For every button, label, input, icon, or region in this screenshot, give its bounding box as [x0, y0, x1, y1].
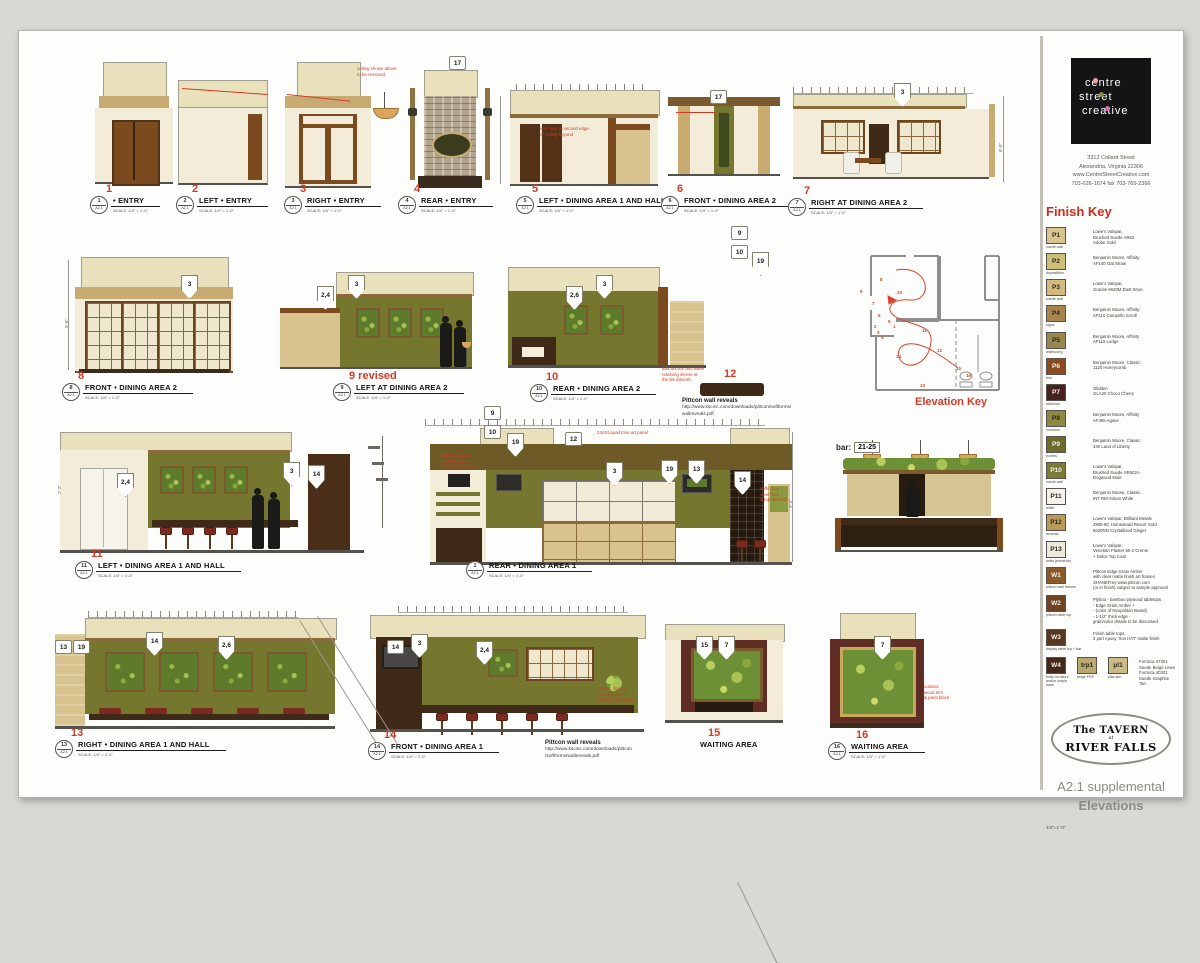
finish-description: Benjamin Moore, AffinityAF465 Agave — [1093, 410, 1139, 423]
elevation-symbol: 9A2.1 — [333, 383, 351, 401]
firm-name-line: centre — [1071, 76, 1151, 90]
elevation-2-drawing — [178, 80, 266, 182]
finish-swatch: P7 — [1046, 384, 1066, 401]
finish-key-item: trp1beige FRP — [1077, 657, 1103, 679]
finish-key-item: P13walls (entrance)Lowe's Valspar,Veneti… — [1046, 541, 1176, 563]
finish-swatch-sublabel: suede wall — [1046, 245, 1086, 249]
elevation-tag-10: 10 — [731, 245, 748, 259]
elevation-label-15: 15 WAITING AREA — [698, 728, 774, 750]
finish-description: Formica 47301 Suede Beige LinenFormica 4… — [1139, 657, 1176, 687]
finish-description: Lowe's Valspar, Brilliant Metals2905-8C … — [1093, 514, 1157, 533]
finish-key-bottom-row: W4finish furniture and/or maple basetrp1… — [1046, 657, 1176, 687]
elevation-label-11: 11 11A2.1 LEFT • DINING AREA 1 AND HALLS… — [75, 549, 241, 579]
elevation-symbol: 4A2.1 — [398, 196, 416, 214]
finish-swatch: P4 — [1046, 305, 1066, 322]
tv-screen-icon — [448, 474, 470, 487]
sheet-name: Elevations — [1046, 798, 1176, 813]
finish-swatch-sublabel: walls (entrance) — [1046, 559, 1086, 563]
elevation-label-2: 2 2A2.1 LEFT • ENTRYSCALE: 1/4" = 1'-0" — [176, 184, 268, 214]
finish-description: Lowe's Valspar,Brushed Suede AR62Adobe G… — [1093, 227, 1134, 246]
finish-swatch-sublabel: display table top + bar — [1046, 647, 1086, 651]
stair-section-icon — [368, 436, 398, 532]
finish-key-item: P10suede wallLowe's Valspar,Brushed Sued… — [1046, 462, 1176, 484]
finish-description: Lowe's Valspar,Granite 6620M Dust Shoe — [1093, 279, 1143, 292]
elevation-symbol: 13A2.1 — [55, 740, 73, 758]
elevation-symbol: 1A2.1 — [90, 196, 108, 214]
finish-key-item: P11whiteBenjamin Moore, ClassicINT RM At… — [1046, 488, 1176, 510]
elevation-label-10: 10 10A2.1 REAR • DINING AREA 2SCALE: 1/4… — [530, 372, 656, 402]
key-plan-number: 2 — [874, 324, 877, 329]
elevation-tag-9: 9 — [484, 406, 501, 420]
sheet-number: A2.1 supplemental — [1046, 779, 1176, 794]
elevation-label-16: 16 16A2.1 WAITING AREASCALE: 1/4" = 1'-0… — [828, 730, 925, 760]
elevation-tag-12: 12 — [565, 432, 582, 446]
finish-description: Benjamin Moore, AffinityAF140 Oat Straw — [1093, 253, 1139, 266]
finish-description: Pittcon Edge Grain Amberwith clear matte… — [1093, 567, 1168, 591]
finish-swatch: W3 — [1046, 629, 1066, 646]
elevation-tag-10: 10 — [484, 425, 501, 439]
key-plan-number: 9 — [860, 289, 863, 294]
elevation-symbol: 10A2.1 — [530, 384, 548, 402]
elevation-7-drawing — [793, 94, 1001, 182]
finish-description: Lowe's Valspar,Brushed Suede SR502ADogwo… — [1093, 462, 1140, 481]
finish-swatch-sublabel: pittcon wall frames — [1046, 585, 1086, 589]
elevation-6-drawing — [668, 97, 780, 181]
red-annotation: ceiling shown aboveto be removed — [357, 66, 429, 77]
finish-key-item: W3display table top + barFinish table to… — [1046, 629, 1176, 651]
key-plan-number: 8 — [880, 277, 883, 282]
finish-swatch: W1 — [1046, 567, 1066, 584]
finish-swatch: P13 — [1046, 541, 1066, 558]
elevation-title: • ENTRY — [111, 196, 160, 207]
bench — [695, 702, 753, 712]
elevation-tag-19: 19 — [73, 640, 90, 654]
finish-swatch: W2 — [1046, 595, 1066, 612]
finish-description: Plyboo - bamboo plywood tabletops- Edge … — [1093, 595, 1161, 625]
elevation-1-drawing — [95, 62, 173, 184]
sconce-icon — [483, 108, 492, 116]
elevation-symbol: 6A2.1 — [661, 196, 679, 214]
finish-key-item: W4finish furniture and/or maple base — [1046, 657, 1072, 687]
tv-screen-icon — [496, 474, 522, 491]
red-annotation: arch way to second edgeof ceiling beyond — [540, 126, 612, 137]
elevation-tag-13: 13 — [55, 640, 72, 654]
finish-swatch: P10 — [1046, 462, 1066, 479]
finish-key-title: Finish Key — [1046, 204, 1176, 219]
finish-swatch: P2 — [1046, 253, 1066, 270]
elevation-tag-9: 9 — [731, 226, 748, 240]
framed-artwork — [840, 647, 916, 717]
elevation-symbol: 5A2.1 — [516, 196, 534, 214]
dimension-label: 9'-6" — [64, 319, 69, 328]
firm-address: 3312 Collard Street Alexandria, Virginia… — [1046, 154, 1176, 188]
elevation-symbol: 1A2.1 — [466, 561, 484, 579]
finish-swatch-sublabel: booths — [1046, 454, 1086, 458]
finish-swatch-sublabel: drywall/trim — [1046, 271, 1086, 275]
finish-swatch-sublabel: white — [1046, 506, 1086, 510]
key-plan-number: 5 — [888, 319, 891, 324]
elevation-label-12: 12 — [724, 369, 736, 380]
elevation-4-drawing — [408, 70, 492, 188]
finish-swatch-sublabel: accents — [1046, 532, 1086, 536]
finish-description: Finish table tops:2 part epoxy 'Iron HAT… — [1093, 629, 1160, 642]
elevation-16-drawing — [830, 613, 924, 733]
elevation-11-drawing — [60, 432, 364, 558]
elevation-13-drawing — [55, 618, 335, 730]
red-annotation: Pittcon drywallreveal/bead todrywall pai… — [441, 453, 513, 470]
logo-dot-icon — [1105, 106, 1110, 111]
key-plan-number: 11 — [922, 328, 927, 333]
elevation-label-1: 1 1A2.1 • ENTRYSCALE: 1/4" = 1'-0" — [90, 184, 160, 214]
bartender-figure — [906, 487, 919, 517]
elevation-symbol: 3A2.1 — [284, 196, 302, 214]
drawing-sheet-page: 12345678910111213141516 Elevation Key — [0, 0, 1200, 828]
dimension-label: 8'-0" — [998, 143, 1003, 152]
elevation-8-drawing — [75, 257, 233, 375]
elevation-9-drawing — [280, 272, 472, 376]
elevation-symbol: 11A2.1 — [75, 561, 93, 579]
finish-description: Benjamin Moore, AffinityAF115 Lodge — [1093, 332, 1139, 345]
red-annotation: outdoorwood trim& paint black — [924, 684, 996, 701]
elevation-symbol: 8A2.1 — [62, 383, 80, 401]
key-plan-number: 16 — [966, 373, 971, 378]
key-plan-number: 14 — [896, 354, 901, 359]
finish-swatch-sublabel: wainscot'g — [1046, 350, 1086, 354]
pendant-light-icon — [372, 92, 398, 122]
bar-elevation-note: bar: 21-25 — [836, 442, 880, 453]
entry-door — [112, 120, 160, 186]
elevation-tag-17: 17 — [449, 56, 466, 70]
finish-description: Benjamin Moore, Classic1120 Honeycomb — [1093, 358, 1141, 371]
elevation-tag-17: 17 — [710, 90, 727, 104]
elevation-label-9: 9 revised 9A2.1 LEFT AT DINING AREA 2SCA… — [333, 371, 464, 401]
key-plan-number: 12 — [937, 348, 942, 353]
finish-swatch-sublabel: suede wall — [1046, 480, 1086, 484]
finish-key-item: P9boothsBenjamin Moore, Classic440 Land … — [1046, 436, 1176, 458]
elevation-label-13: 13 13A2.1 RIGHT • DINING AREA 1 AND HALL… — [55, 728, 226, 758]
entry-double-door — [299, 114, 357, 184]
bar-tag: 21-25 — [854, 442, 880, 453]
elevation-5-drawing — [510, 90, 658, 188]
finish-swatch-sublabel: signs — [1046, 323, 1086, 327]
dimension-label: 7'-2" — [57, 485, 62, 494]
elevation-number: 1 — [106, 184, 160, 195]
key-plan-number: 15 — [956, 366, 961, 371]
finish-swatch: P11 — [1046, 488, 1066, 505]
key-plan-number: 13 — [920, 383, 925, 388]
finish-swatch: P1 — [1046, 227, 1066, 244]
logo-dot-icon — [1099, 92, 1104, 97]
elevation-12-reveal-sample — [700, 383, 764, 396]
rear-dining-area-1-drawing — [430, 428, 792, 568]
finish-swatch-sublabel: trim — [1046, 376, 1086, 380]
elevation-3-drawing — [285, 62, 371, 186]
key-plan-number: 3 — [877, 330, 880, 335]
finish-key-item: pl1plas lam — [1108, 657, 1134, 679]
elevation-label-7: 7 7A2.1 RIGHT AT DINING AREA 2SCALE: 1/4… — [788, 186, 923, 216]
bar-top-plants — [843, 458, 995, 470]
finish-swatch: P6 — [1046, 358, 1066, 375]
elevation-label-rear-dining-1: 1A2.1 REAR • DINING AREA 1SCALE: 1/4" = … — [466, 560, 592, 579]
finish-key-item: W1pittcon wall framesPittcon Edge Grain … — [1046, 567, 1176, 591]
project-logo: The TAVERN at RIVER FALLS — [1051, 713, 1171, 765]
finish-key-item: P7windowsGliddenGLA20 Choco Cherry — [1046, 384, 1176, 406]
finish-description: Benjamin Moore, AffinityAF110 Campello S… — [1093, 305, 1139, 318]
title-block-column: centre street creative 3312 Collard Stre… — [1046, 58, 1176, 830]
finish-description: Benjamin Moore, ClassicINT RM Atrium Whi… — [1093, 488, 1141, 501]
red-annotation: 24x34 quad tone art panel — [597, 430, 669, 436]
pittcon-note: Pittcon wall revealshttp://www.kscinc.co… — [682, 397, 812, 418]
key-plan-number: 10 — [897, 290, 902, 295]
finish-key-item: P3suede wallLowe's Valspar,Granite 6620M… — [1046, 279, 1176, 301]
elevation-symbol: 16A2.1 — [828, 742, 846, 760]
elevation-tag-14: 14 — [387, 640, 404, 654]
finish-swatch: P8 — [1046, 410, 1066, 427]
key-plan-number: 1 — [893, 324, 896, 329]
elevation-symbol: 2A2.1 — [176, 196, 194, 214]
elevation-label-3: 3 3A2.1 RIGHT • ENTRYSCALE: 1/4" = 1'-0" — [284, 184, 381, 214]
finish-description: Benjamin Moore, Classic440 Land of Liber… — [1093, 436, 1141, 449]
tavern-sign-icon — [432, 132, 472, 158]
finish-key-item: P1suede wallLowe's Valspar,Brushed Suede… — [1046, 227, 1176, 249]
finish-key-item: P12accentsLowe's Valspar, Brilliant Meta… — [1046, 514, 1176, 536]
finish-description: Lowe's Valspar,Venetian Plaster 50-2 Cre… — [1093, 541, 1148, 560]
sconce-icon — [408, 108, 417, 116]
bar-elevation-drawing — [835, 440, 1003, 554]
elevation-label-4: 4 4A2.1 REAR • ENTRYSCALE: 1/4" = 1'-0" — [398, 184, 493, 214]
elevation-symbol: 7A2.1 — [788, 198, 806, 216]
pittcon-note: Pittcon wall revealshttp://www.kscinc.co… — [545, 739, 675, 760]
finish-description: GliddenGLA20 Choco Cherry — [1093, 384, 1134, 397]
finish-swatch: P3 — [1046, 279, 1066, 296]
finish-key-item: P8corridorsBenjamin Moore, AffinityAF465… — [1046, 410, 1176, 432]
key-plan-number: 7 — [872, 301, 875, 306]
finish-swatch-sublabel: pittcon table top — [1046, 613, 1086, 617]
elevation-14-drawing — [370, 615, 644, 733]
finish-key-item: P2drywall/trimBenjamin Moore, AffinityAF… — [1046, 253, 1176, 275]
red-annotation: Pittcon drywallreveal/bead atdrywall pai… — [598, 686, 670, 703]
finish-swatch-sublabel: corridors — [1046, 428, 1086, 432]
elevation-key-plan: 12345678910111213141516 — [838, 240, 1008, 405]
logo-dot-icon — [1093, 78, 1098, 83]
finish-swatch: P12 — [1046, 514, 1066, 531]
titleblock-divider — [1040, 36, 1043, 790]
key-plan-number: 6 — [878, 313, 881, 318]
finish-key-item: P5wainscot'gBenjamin Moore, AffinityAF11… — [1046, 332, 1176, 354]
key-plan-number: 4 — [881, 335, 884, 340]
elevation-label-8: 8 8A2.1 FRONT • DINING AREA 2SCALE: 1/4"… — [62, 371, 193, 401]
finish-swatch-sublabel: windows — [1046, 402, 1086, 406]
finish-key-item: W2pittcon table topPlyboo - bamboo plywo… — [1046, 595, 1176, 625]
elevation-label-6: 6 6A2.1 FRONT • DINING AREA 2SCALE: 1/4"… — [661, 184, 792, 214]
firm-logo: centre street creative — [1071, 58, 1151, 144]
elevation-label-5: 5 5A2.1 LEFT • DINING AREA 1 AND HALLSCA… — [516, 184, 682, 214]
elevation-key-label: Elevation Key — [915, 396, 987, 408]
finish-swatch: P9 — [1046, 436, 1066, 453]
finish-swatch: P5 — [1046, 332, 1066, 349]
finish-key-list: P1suede wallLowe's Valspar,Brushed Suede… — [1046, 227, 1176, 651]
finish-key-item: P4signsBenjamin Moore, AffinityAF110 Cam… — [1046, 305, 1176, 327]
elevation-symbol: 14A2.1 — [368, 742, 386, 760]
elevation-label-14: 14 14A2.1 FRONT • DINING AREA 1SCALE: 1/… — [368, 730, 499, 760]
finish-key-item: P6trimBenjamin Moore, Classic1120 Honeyc… — [1046, 358, 1176, 380]
finish-swatch-sublabel: suede wall — [1046, 297, 1086, 301]
red-annotation: soffit dropsteel floor& top finished — [760, 486, 832, 503]
